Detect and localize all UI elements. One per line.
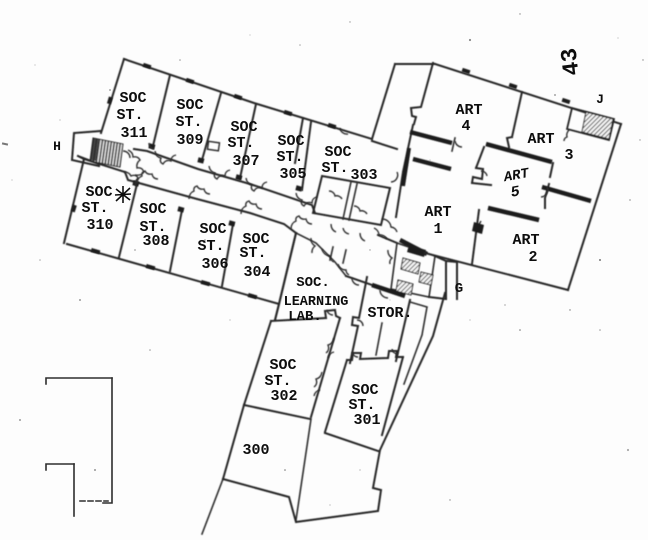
svg-text:ST.: ST. (175, 114, 202, 131)
svg-text:ART: ART (527, 131, 554, 148)
svg-text:ART: ART (424, 204, 451, 221)
svg-text:H: H (53, 139, 61, 154)
svg-text:310: 310 (86, 217, 113, 234)
svg-text:300: 300 (242, 442, 269, 459)
svg-text:SOC: SOC (176, 97, 203, 114)
svg-text:ST.: ST. (116, 107, 143, 124)
svg-text:SOC: SOC (85, 184, 112, 201)
svg-text:SOC: SOC (277, 133, 304, 150)
svg-text:SOC: SOC (119, 90, 146, 107)
svg-text:1: 1 (433, 221, 442, 238)
svg-text:ST.: ST. (321, 160, 348, 177)
svg-text:ST.: ST. (227, 135, 254, 152)
svg-text:ART: ART (455, 102, 482, 119)
svg-text:SOC: SOC (199, 221, 226, 238)
svg-text:LAB.: LAB. (288, 309, 322, 325)
svg-text:302: 302 (270, 388, 297, 405)
svg-text:307: 307 (232, 153, 259, 170)
svg-text:3: 3 (564, 147, 573, 164)
svg-text:ART: ART (512, 232, 539, 249)
svg-text:43: 43 (556, 46, 585, 77)
svg-text:G: G (455, 281, 463, 297)
svg-text:SOC: SOC (324, 144, 351, 161)
svg-text:305: 305 (279, 166, 306, 183)
svg-text:ST.: ST. (197, 238, 224, 255)
svg-text:303: 303 (350, 167, 377, 184)
svg-text:4: 4 (461, 118, 470, 135)
svg-text:306: 306 (201, 256, 228, 273)
svg-text:STOR.: STOR. (367, 305, 412, 322)
svg-text:SOC: SOC (230, 119, 257, 136)
svg-text:LEARNING: LEARNING (284, 295, 349, 310)
svg-text:2: 2 (528, 249, 537, 266)
svg-text:ST.: ST. (276, 149, 303, 166)
svg-text:J: J (596, 92, 604, 107)
svg-text:SOC: SOC (139, 201, 166, 218)
svg-text:SOC.: SOC. (296, 275, 330, 291)
svg-text:ST.: ST. (239, 245, 266, 262)
svg-text:309: 309 (176, 132, 203, 149)
svg-text:301: 301 (353, 412, 380, 429)
svg-text:308: 308 (142, 233, 169, 250)
svg-text:311: 311 (120, 125, 147, 142)
svg-text:SOC: SOC (269, 357, 296, 374)
svg-text:ST.: ST. (81, 200, 108, 217)
svg-text:304: 304 (243, 264, 270, 281)
